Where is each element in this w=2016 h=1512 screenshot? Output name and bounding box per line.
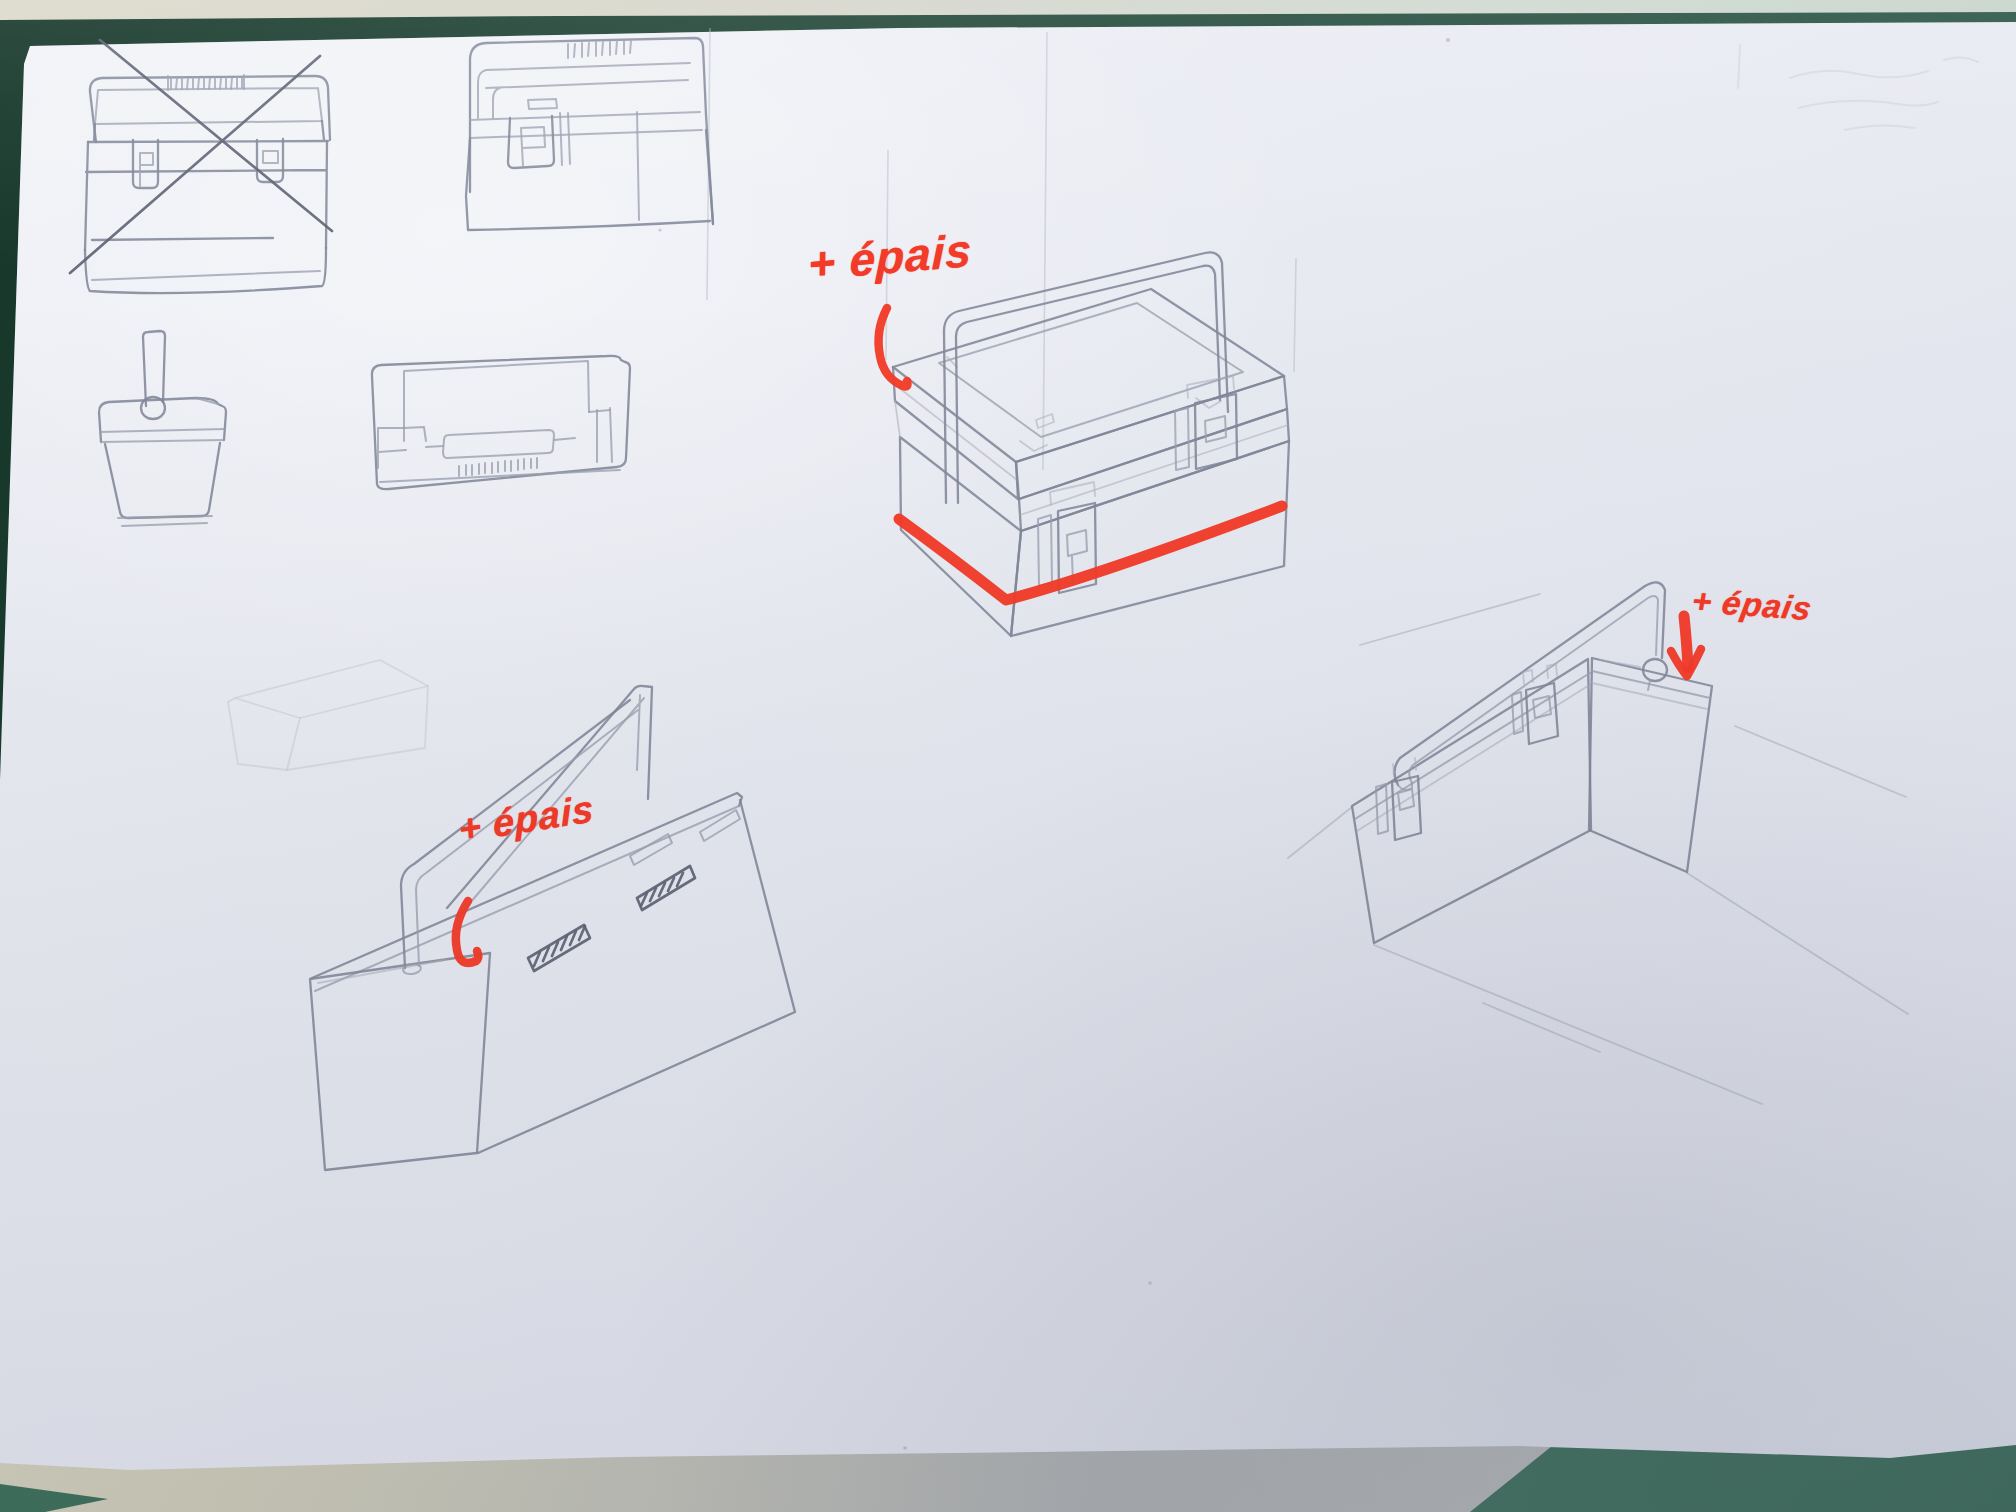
photo-of-sketch-sheet: + épais + épais + épais	[0, 0, 2016, 1512]
red-curved-arrow-bottom-left	[456, 901, 478, 963]
sketch-cooler-vertical-handle	[99, 331, 226, 526]
sketch-toolbox-three-quarter	[879, 252, 1289, 636]
sketch-faint-cuboid	[228, 660, 428, 770]
sketch-toolbox-front-crossed-out	[70, 40, 332, 293]
red-arrow-stem	[1684, 616, 1688, 668]
handle-outer	[944, 252, 1228, 503]
sketch-toolbox-open-lid	[310, 686, 795, 1170]
pencil-sketches-canvas	[0, 0, 2016, 1512]
sketch-toolbox-top-view	[372, 356, 630, 489]
sketch-toolbox-low-angle	[1288, 582, 1908, 1104]
sketch-toolbox-front-view-with-handle	[466, 38, 713, 230]
